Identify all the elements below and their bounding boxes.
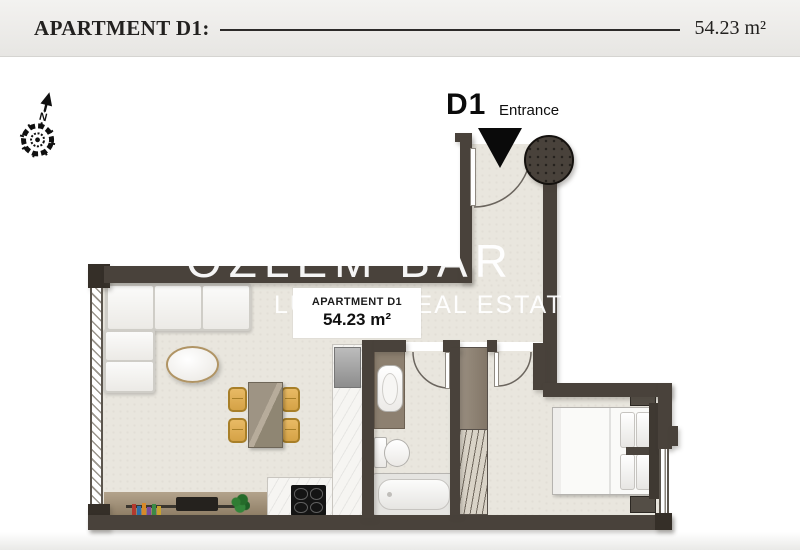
entrance-text-label: Entrance [499,102,559,119]
pillow [620,454,635,490]
cooktop [291,485,326,516]
badge-apartment-name: APARTMENT D1 [312,296,402,308]
page-footer-gradient [0,532,800,550]
coffee-table [166,346,219,383]
page-title: APARTMENT D1: [34,16,210,41]
wall-bath-hall-divider [450,348,460,515]
toilet-bowl [384,439,410,467]
wall-bedroom-top [543,383,672,397]
window-bedroom [659,449,669,513]
wall-bottom [88,515,672,530]
sofa-main [105,283,251,331]
window-living-left [90,288,103,506]
compass-north-letter: N [38,111,49,125]
sink [377,365,403,412]
apartment-area: 54.23 m² [694,17,766,40]
area-badge: APARTMENT D1 54.23 m² [293,288,421,338]
plant-icon [230,494,250,514]
tv-unit [176,497,218,511]
bathroom-door-leaf [445,352,450,389]
wall-hall-hinge-block [487,340,497,352]
entrance-column [524,135,574,185]
wall-corner-bottom-right [655,513,672,530]
dining-chair [281,418,300,443]
sofa-chaise [103,329,155,393]
wall-bathroom-top-left [374,340,406,352]
dining-chair [281,387,300,412]
wall-bedroom-pier [670,426,678,446]
dining-chair [228,387,247,412]
dining-chair [228,418,247,443]
compass-icon: N [14,90,64,164]
bathtub [372,473,456,516]
dining-table [248,382,283,448]
wall-corridor-right [543,166,557,390]
entrance-unit-label: D1 [446,88,486,122]
wardrobe [459,347,488,515]
header-bar: APARTMENT D1: 54.23 m² [0,0,800,57]
book-row [132,502,172,516]
hall-door-leaf [494,352,499,387]
floor-plan-page: APARTMENT D1: 54.23 m² N D1 Entrance [0,0,800,550]
entrance-marker-icon [478,128,522,168]
header-divider-line [220,29,681,31]
fridge [334,347,361,388]
badge-apartment-area: 54.23 m² [323,310,391,330]
pillow [620,412,635,448]
entrance-door-leaf [470,148,476,206]
watermark-brand: OZLEM BAR [186,234,515,288]
wall-bathroom-left [362,340,374,518]
